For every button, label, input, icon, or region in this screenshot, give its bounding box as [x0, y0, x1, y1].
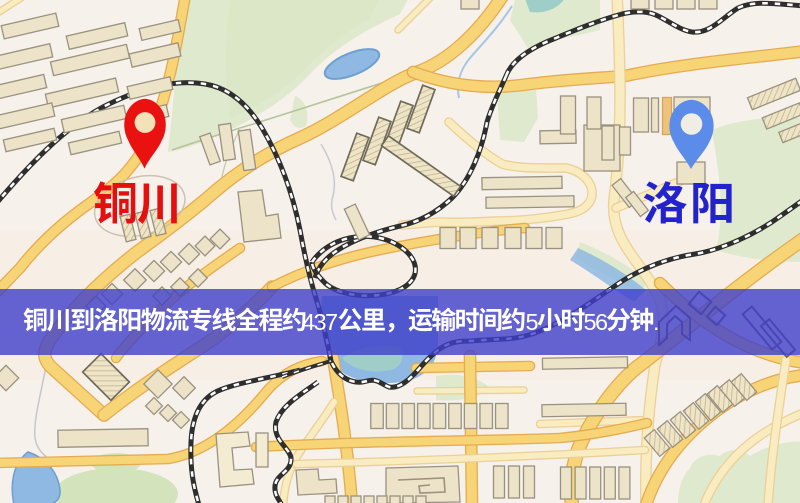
svg-text:5: 5 [526, 309, 539, 335]
svg-text:.: . [653, 309, 660, 335]
svg-text:437: 437 [302, 309, 337, 335]
svg-text:56: 56 [584, 309, 608, 335]
